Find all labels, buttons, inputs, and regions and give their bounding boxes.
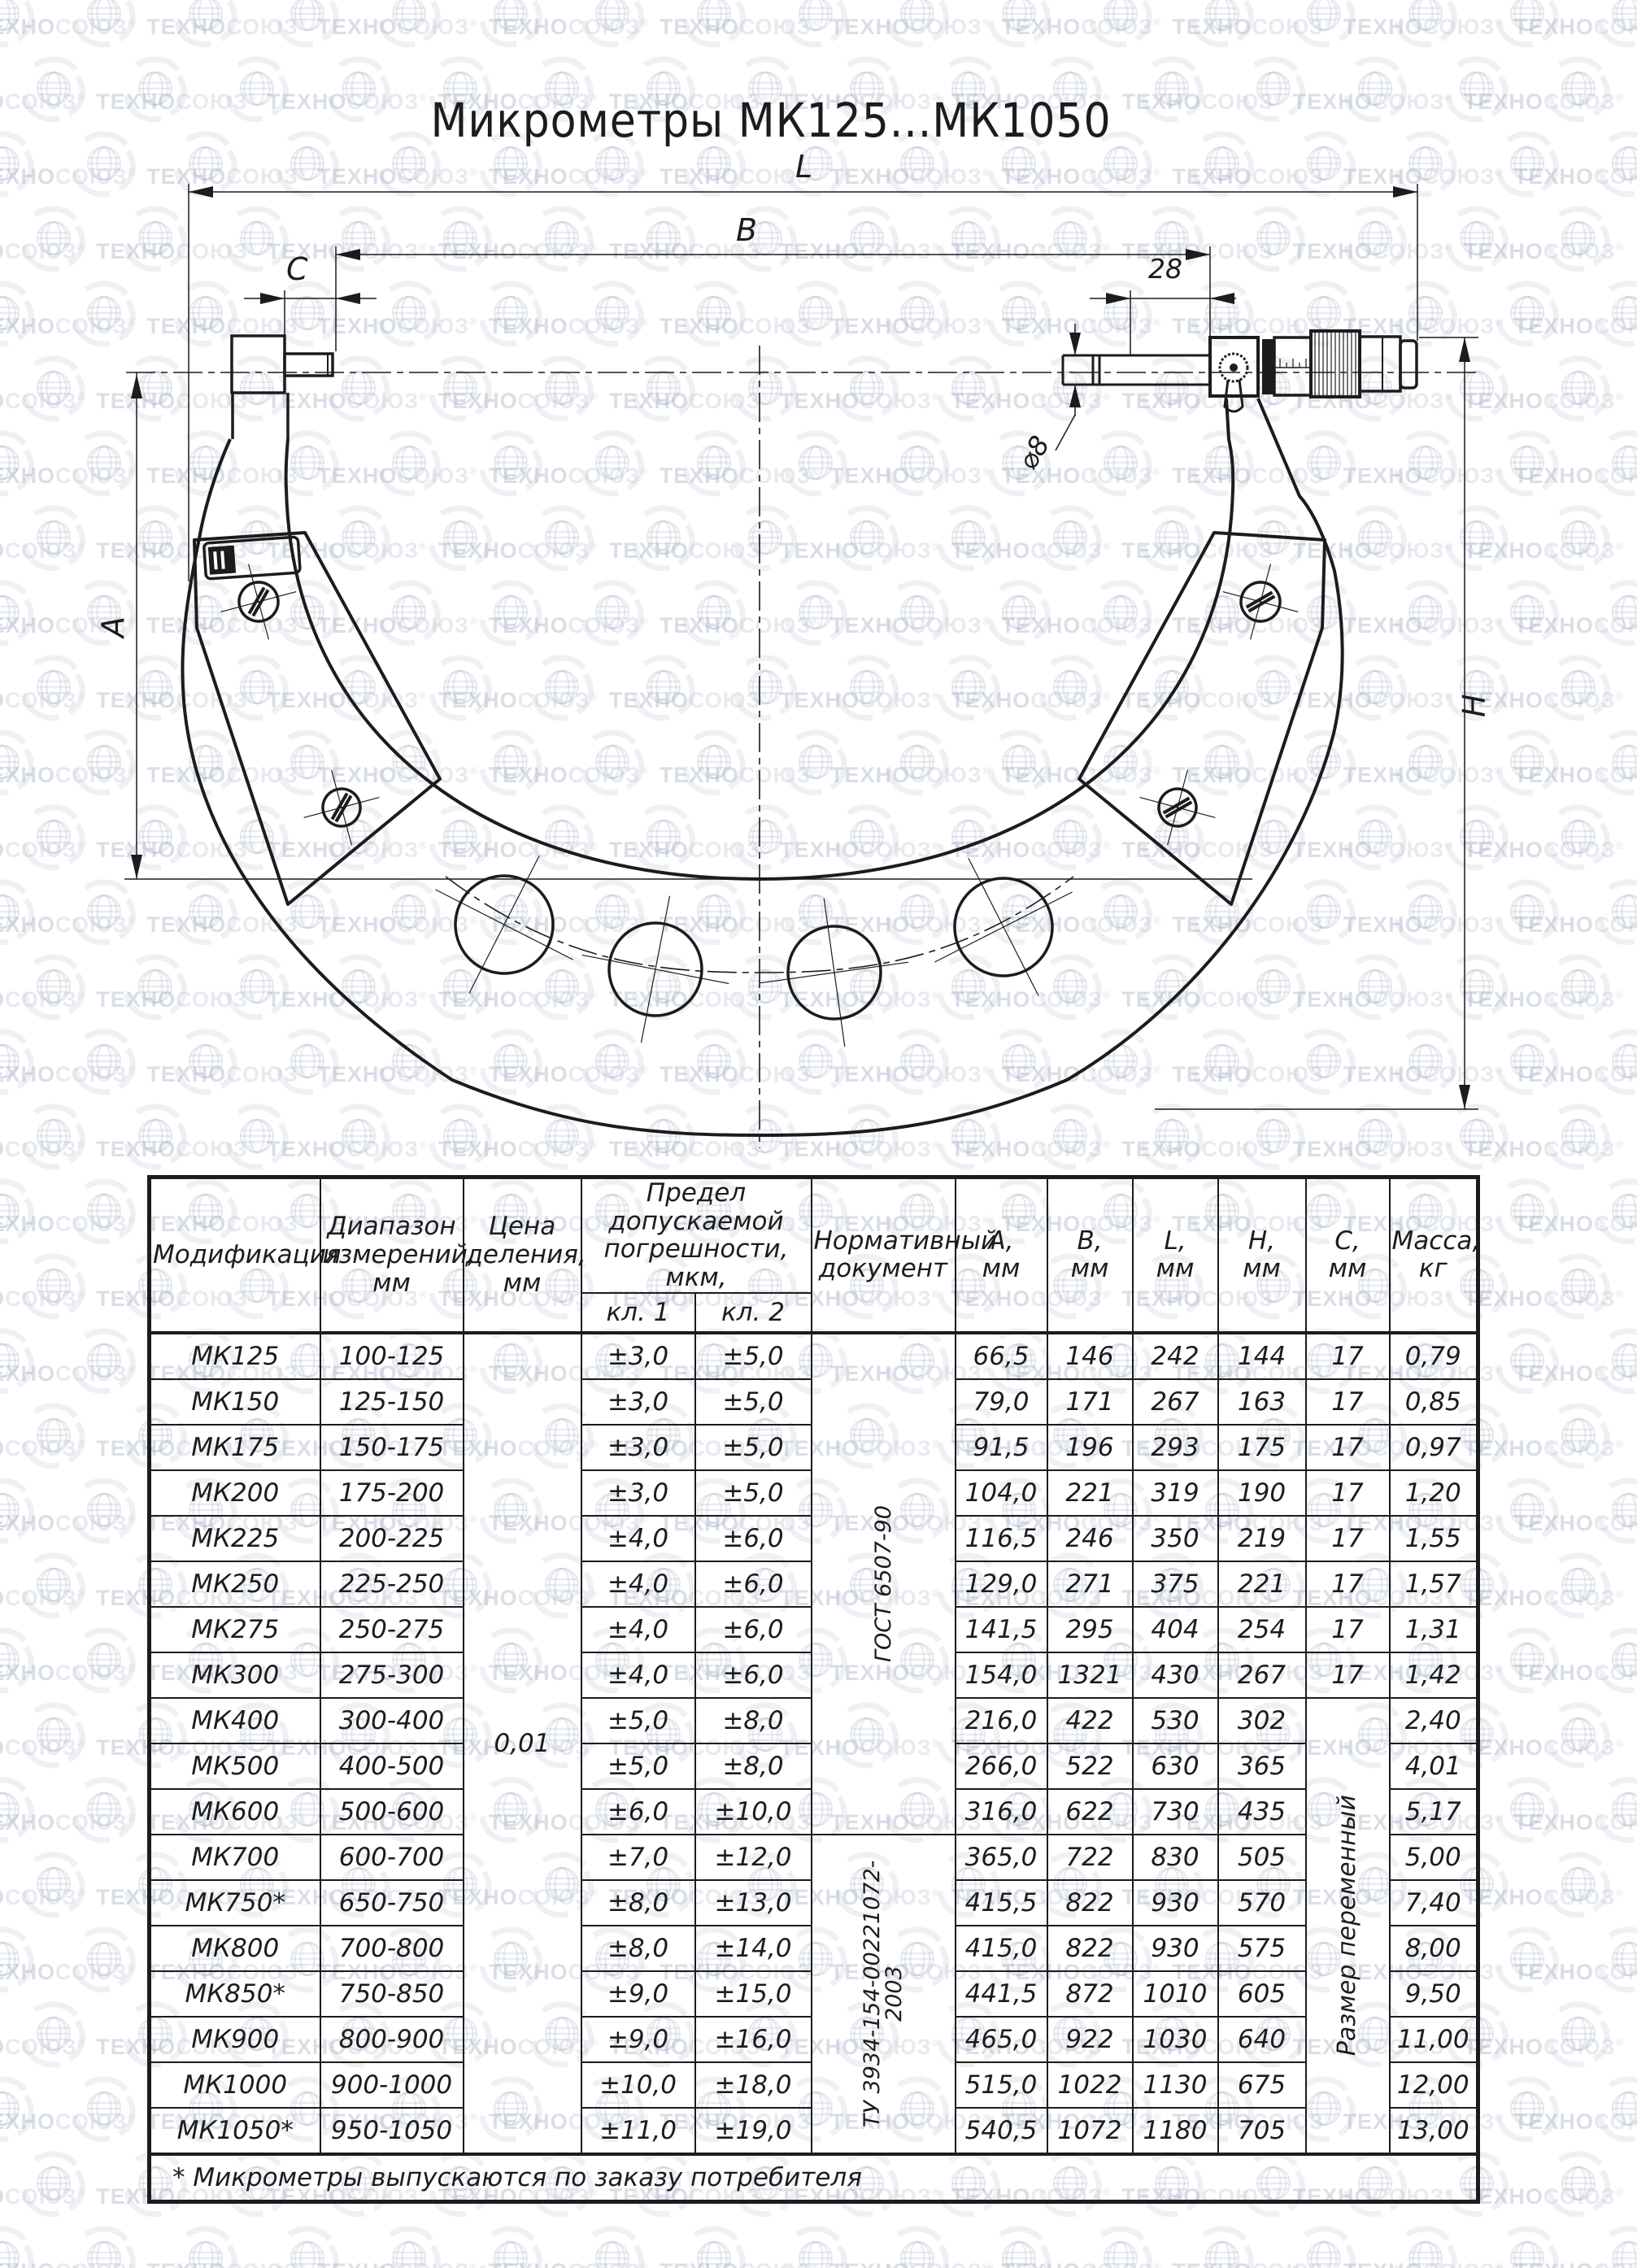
globe-icon <box>1594 1176 1637 1246</box>
cell-b: 271 <box>1047 1561 1133 1607</box>
globe-icon <box>19 1251 89 1321</box>
cell-mass: 2,40 <box>1390 1698 1478 1743</box>
cell-mass: 5,17 <box>1390 1789 1478 1835</box>
cell-b: 171 <box>1047 1379 1133 1425</box>
cell-mass: 1,57 <box>1390 1561 1478 1607</box>
cell-a: 91,5 <box>956 1425 1047 1470</box>
page: ТЕХНОСОЮЗ®ТЕХНОСОЮЗ®ТЕХНОСОЮЗ®ТЕХНОСОЮЗ®… <box>0 0 1637 2268</box>
globe-icon <box>1492 1475 1562 1545</box>
cell-range: 800-900 <box>320 2017 464 2062</box>
thimble-group <box>1262 331 1417 397</box>
cell-mass: 4,01 <box>1390 1743 1478 1789</box>
globe-icon <box>1594 1625 1637 1695</box>
watermark-text: ТЕХНОСОЮЗ® <box>1464 1735 1624 1761</box>
globe-icon <box>1594 2074 1637 2144</box>
col-header-division: Цена деления, мм <box>464 1178 581 1333</box>
cell-h: 175 <box>1218 1425 1306 1470</box>
globe-icon <box>69 1625 139 1695</box>
cell-modification: МК250 <box>150 1561 320 1607</box>
watermark-text: ТЕХНОСОЮЗ® <box>660 2259 820 2268</box>
globe-icon <box>1594 1774 1637 1844</box>
watermark-text-row: ТЕХНОСОЮЗ®ТЕХНОСОЮЗ®ТЕХНОСОЮЗ®ТЕХНОСОЮЗ®… <box>0 2259 1637 2268</box>
cell-modification: МК275 <box>150 1607 320 1652</box>
globe-icon <box>69 2074 139 2144</box>
globe-icon <box>374 2223 444 2268</box>
globe-icon <box>1594 1475 1637 1545</box>
globe-icon <box>171 2223 241 2268</box>
watermark-text: ТЕХНОСОЮЗ® <box>1001 2259 1161 2268</box>
cell-c: 17 <box>1306 1425 1390 1470</box>
cell-range: 125-150 <box>320 1379 464 1425</box>
cell-l: 1010 <box>1133 1971 1218 2017</box>
globe-icon <box>1187 2223 1257 2268</box>
cell-b: 196 <box>1047 1425 1133 1470</box>
cell-l: 830 <box>1133 1835 1218 1880</box>
cell-division: 0,01 <box>464 1333 581 2154</box>
cell-range: 600-700 <box>320 1835 464 1880</box>
globe-icon <box>1543 1400 1613 1470</box>
cell-class2: ±13,0 <box>695 1880 812 1926</box>
watermark-text: ТЕХНОСОЮЗ® <box>0 2184 85 2209</box>
cell-range: 200-225 <box>320 1516 464 1561</box>
cell-range: 300-400 <box>320 1698 464 1743</box>
cell-l: 293 <box>1133 1425 1218 1470</box>
cell-class1: ±10,0 <box>581 2062 695 2108</box>
cell-mass: 1,31 <box>1390 1607 1478 1652</box>
cell-doc-tu: ТУ 3934-154-00221072-2003 <box>812 1835 956 2154</box>
col-header-l: L, мм <box>1133 1178 1218 1333</box>
dim-label-L: L <box>795 149 812 185</box>
cell-h: 219 <box>1218 1516 1306 1561</box>
dimension-H: H <box>1155 337 1492 1109</box>
watermark-text: ТЕХНОСОЮЗ® <box>146 2259 307 2268</box>
watermark-text: ТЕХНОСОЮЗ® <box>1514 2109 1637 2135</box>
cell-b: 146 <box>1047 1333 1133 1379</box>
cell-a: 129,0 <box>956 1561 1047 1607</box>
cell-modification: МК700 <box>150 1835 320 1880</box>
cell-class1: ±3,0 <box>581 1425 695 1470</box>
cell-range: 225-250 <box>320 1561 464 1607</box>
cell-mass: 5,00 <box>1390 1835 1478 1880</box>
cell-c: 17 <box>1306 1607 1390 1652</box>
globe-icon <box>69 1924 139 1994</box>
cell-h: 675 <box>1218 2062 1306 2108</box>
dim-label-B: B <box>736 212 757 248</box>
spec-table: Модификация Диапазон измерений, мм Цена … <box>147 1175 1480 2204</box>
globe-icon <box>0 1475 37 1545</box>
cell-class1: ±5,0 <box>581 1743 695 1789</box>
cell-modification: МК500 <box>150 1743 320 1789</box>
cell-modification: МК600 <box>150 1789 320 1835</box>
cell-modification: МК750* <box>150 1880 320 1926</box>
cell-l: 1030 <box>1133 2017 1218 2062</box>
cell-h: 221 <box>1218 1561 1306 1607</box>
cell-class1: ±11,0 <box>581 2108 695 2154</box>
watermark-text: ТЕХНОСОЮЗ® <box>0 1735 85 1761</box>
globe-icon <box>19 1400 89 1470</box>
cell-class2: ±6,0 <box>695 1516 812 1561</box>
cell-class1: ±9,0 <box>581 2017 695 2062</box>
cell-class2: ±6,0 <box>695 1607 812 1652</box>
globe-icon <box>1594 1326 1637 1395</box>
globe-icon <box>19 1550 89 1620</box>
cell-l: 404 <box>1133 1607 1218 1652</box>
globe-icon <box>1543 1251 1613 1321</box>
cell-a: 216,0 <box>956 1698 1047 1743</box>
globe-icon <box>1492 2223 1562 2268</box>
cell-range: 700-800 <box>320 1926 464 1971</box>
watermark-text: ТЕХНОСОЮЗ® <box>1514 1212 1637 1237</box>
watermark-text: ТЕХНОСОЮЗ® <box>0 1436 85 1461</box>
cell-range: 650-750 <box>320 1880 464 1926</box>
cell-l: 930 <box>1133 1926 1218 1971</box>
cell-range: 275-300 <box>320 1652 464 1698</box>
watermark-text: ТЕХНОСОЮЗ® <box>1514 1960 1637 1985</box>
globe-icon <box>0 1625 37 1695</box>
cell-l: 242 <box>1133 1333 1218 1379</box>
watermark-text: ТЕХНОСОЮЗ® <box>1343 2259 1504 2268</box>
globe-icon <box>0 1176 37 1246</box>
watermark-text: ТЕХНОСОЮЗ® <box>1464 1436 1624 1461</box>
cell-doc-gost: ГОСТ 6507-90 <box>812 1333 956 1835</box>
globe-icon <box>19 1999 89 2069</box>
cell-h: 505 <box>1218 1835 1306 1880</box>
brand-plate <box>203 537 300 579</box>
globe-icon <box>1289 2223 1359 2268</box>
watermark-text: ТЕХНОСОЮЗ® <box>1464 1885 1624 1910</box>
cell-mass: 0,79 <box>1390 1333 1478 1379</box>
watermark-text: ТЕХНОСОЮЗ® <box>1464 2184 1624 2209</box>
watermark-text: ТЕХНОСОЮЗ® <box>0 1810 136 1835</box>
cell-class2: ±10,0 <box>695 1789 812 1835</box>
col-header-class2: кл. 2 <box>695 1293 812 1333</box>
globe-icon <box>69 2223 139 2268</box>
cell-a: 415,0 <box>956 1926 1047 1971</box>
dimension-A: A <box>95 372 1252 879</box>
cell-a: 316,0 <box>956 1789 1047 1835</box>
cell-class2: ±5,0 <box>695 1470 812 1516</box>
globe-icon <box>1492 1924 1562 1994</box>
cell-class1: ±4,0 <box>581 1607 695 1652</box>
watermark-text: ТЕХНОСОЮЗ® <box>830 2259 990 2268</box>
watermark-text: ТЕХНОСОЮЗ® <box>0 1361 136 1386</box>
globe-icon <box>1594 2223 1637 2268</box>
watermark-text: ТЕХНОСОЮЗ® <box>1464 1586 1624 1611</box>
cell-h: 605 <box>1218 1971 1306 2017</box>
cell-modification: МК300 <box>150 1652 320 1698</box>
cell-b: 1022 <box>1047 2062 1133 2108</box>
cell-a: 116,5 <box>956 1516 1047 1561</box>
cell-h: 575 <box>1218 1926 1306 1971</box>
cell-b: 295 <box>1047 1607 1133 1652</box>
watermark-text: ТЕХНОСОЮЗ® <box>0 2259 136 2268</box>
globe-icon <box>69 1176 139 1246</box>
watermark-text: ТЕХНОСОЮЗ® <box>1514 1361 1637 1386</box>
cell-l: 375 <box>1133 1561 1218 1607</box>
cell-b: 1072 <box>1047 2108 1133 2154</box>
cell-class2: ±5,0 <box>695 1425 812 1470</box>
col-header-h: Н, мм <box>1218 1178 1306 1333</box>
cell-mass: 0,85 <box>1390 1379 1478 1425</box>
cell-b: 246 <box>1047 1516 1133 1561</box>
cell-b: 522 <box>1047 1743 1133 1789</box>
cell-class1: ±9,0 <box>581 1971 695 2017</box>
cell-a: 441,5 <box>956 1971 1047 2017</box>
cell-b: 872 <box>1047 1971 1133 2017</box>
spindle-group <box>1063 355 1210 385</box>
cell-c: 17 <box>1306 1561 1390 1607</box>
globe-icon <box>0 1924 37 1994</box>
spec-table-footer: * Микрометры выпускаются по заказу потре… <box>150 2154 1478 2202</box>
cell-mass: 1,20 <box>1390 1470 1478 1516</box>
globe-icon <box>1391 2223 1461 2268</box>
anvil-group <box>232 336 333 439</box>
watermark-text: ТЕХНОСОЮЗ® <box>0 1212 136 1237</box>
cell-class2: ±5,0 <box>695 1379 812 1425</box>
centerlines <box>126 346 1476 1148</box>
cell-modification: МК175 <box>150 1425 320 1470</box>
col-header-b: В, мм <box>1047 1178 1133 1333</box>
dim-label-H: H <box>1456 694 1492 717</box>
cell-a: 415,5 <box>956 1880 1047 1926</box>
globe-icon <box>882 2223 952 2268</box>
col-header-range: Диапазон измерений, мм <box>320 1178 464 1333</box>
watermark-text: ТЕХНОСОЮЗ® <box>1514 2259 1637 2268</box>
cell-class1: ±3,0 <box>581 1333 695 1379</box>
globe-icon <box>0 2074 37 2144</box>
globe-icon <box>1543 1550 1613 1620</box>
cell-b: 822 <box>1047 1926 1133 1971</box>
micrometer-drawing: Микрометры МК125...МК1050 L B <box>0 0 1637 1175</box>
cell-c: 17 <box>1306 1333 1390 1379</box>
globe-icon <box>1492 1326 1562 1395</box>
spec-table-header: Модификация Диапазон измерений, мм Цена … <box>150 1178 1478 1333</box>
cell-mass: 1,55 <box>1390 1516 1478 1561</box>
globe-icon <box>69 1326 139 1395</box>
cell-modification: МК400 <box>150 1698 320 1743</box>
cell-modification: МК1050* <box>150 2108 320 2154</box>
cell-l: 430 <box>1133 1652 1218 1698</box>
col-header-c: С, мм <box>1306 1178 1390 1333</box>
boss-group <box>1210 337 1258 411</box>
cell-modification: МК200 <box>150 1470 320 1516</box>
globe-icon <box>1492 1774 1562 1844</box>
globe-icon <box>69 1475 139 1545</box>
col-header-error-limit: Предел допускаемой погрешности, мкм, <box>581 1178 812 1293</box>
watermark-text: ТЕХНОСОЮЗ® <box>0 1511 136 1536</box>
watermark-text: ТЕХНОСОЮЗ® <box>0 1586 85 1611</box>
cell-modification: МК150 <box>150 1379 320 1425</box>
cell-range: 175-200 <box>320 1470 464 1516</box>
frame-holes <box>400 821 1108 1057</box>
globe-icon <box>19 1700 89 1770</box>
globe-icon <box>0 2223 37 2268</box>
cell-h: 190 <box>1218 1470 1306 1516</box>
page-title: Микрометры МК125...МК1050 <box>430 94 1111 148</box>
watermark-text: ТЕХНОСОЮЗ® <box>1464 1286 1624 1312</box>
watermark-text: ТЕХНОСОЮЗ® <box>0 2109 136 2135</box>
globe-icon <box>1543 1999 1613 2069</box>
cell-h: 365 <box>1218 1743 1306 1789</box>
cell-a: 515,0 <box>956 2062 1047 2108</box>
globe-icon <box>1492 2074 1562 2144</box>
cell-class2: ±15,0 <box>695 1971 812 2017</box>
globe-icon <box>1543 1700 1613 1770</box>
cell-a: 540,5 <box>956 2108 1047 2154</box>
globe-icon <box>1543 1849 1613 1919</box>
globe-icon <box>679 2223 749 2268</box>
globe-icon <box>69 1774 139 1844</box>
cell-l: 1130 <box>1133 2062 1218 2108</box>
dimension-B: B <box>336 212 1210 351</box>
globe-icon <box>1492 1176 1562 1246</box>
cell-c: 17 <box>1306 1379 1390 1425</box>
cell-mass: 0,97 <box>1390 1425 1478 1470</box>
cell-c-variable: Размер переменный <box>1306 1698 1390 2154</box>
cell-l: 350 <box>1133 1516 1218 1561</box>
cell-modification: МК850* <box>150 1971 320 2017</box>
cell-b: 722 <box>1047 1835 1133 1880</box>
cell-class1: ±3,0 <box>581 1470 695 1516</box>
cell-b: 422 <box>1047 1698 1133 1743</box>
cell-mass: 1,42 <box>1390 1652 1478 1698</box>
cell-class1: ±3,0 <box>581 1379 695 1425</box>
watermark-text: ТЕХНОСОЮЗ® <box>1172 2259 1332 2268</box>
cell-a: 266,0 <box>956 1743 1047 1789</box>
cell-modification: МК800 <box>150 1926 320 1971</box>
cell-class2: ±8,0 <box>695 1698 812 1743</box>
cell-mass: 7,40 <box>1390 1880 1478 1926</box>
cell-h: 640 <box>1218 2017 1306 2062</box>
watermark-text: ТЕХНОСОЮЗ® <box>0 2035 85 2060</box>
cell-h: 570 <box>1218 1880 1306 1926</box>
globe-icon <box>1594 1924 1637 1994</box>
cell-class1: ±4,0 <box>581 1652 695 1698</box>
dim-label-C: C <box>286 251 308 287</box>
cell-range: 950-1050 <box>320 2108 464 2154</box>
globe-icon <box>0 1774 37 1844</box>
watermark-text: ТЕХНОСОЮЗ® <box>1464 2035 1624 2060</box>
globe-icon <box>0 1326 37 1395</box>
watermark-text: ТЕХНОСОЮЗ® <box>1514 1810 1637 1835</box>
cell-mass: 13,00 <box>1390 2108 1478 2154</box>
cell-class1: ±8,0 <box>581 1926 695 1971</box>
cell-range: 150-175 <box>320 1425 464 1470</box>
cell-c: 17 <box>1306 1652 1390 1698</box>
cell-a: 141,5 <box>956 1607 1047 1652</box>
watermark-text: ТЕХНОСОЮЗ® <box>1514 1661 1637 1686</box>
cell-modification: МК225 <box>150 1516 320 1561</box>
cell-class2: ±12,0 <box>695 1835 812 1880</box>
cell-class2: ±5,0 <box>695 1333 812 1379</box>
cell-h: 705 <box>1218 2108 1306 2154</box>
cell-class1: ±5,0 <box>581 1698 695 1743</box>
cell-a: 365,0 <box>956 1835 1047 1880</box>
cell-c: 17 <box>1306 1516 1390 1561</box>
cell-range: 250-275 <box>320 1607 464 1652</box>
cell-modification: МК125 <box>150 1333 320 1379</box>
globe-icon <box>272 2223 342 2268</box>
cell-class2: ±18,0 <box>695 2062 812 2108</box>
cell-class2: ±6,0 <box>695 1652 812 1698</box>
globe-icon <box>781 2223 851 2268</box>
watermark-text: ТЕХНОСОЮЗ® <box>0 1661 136 1686</box>
col-header-class1: кл. 1 <box>581 1293 695 1333</box>
dimension-28: 28 <box>1090 253 1236 355</box>
cell-c: 17 <box>1306 1470 1390 1516</box>
globe-icon <box>476 2223 546 2268</box>
col-header-modification: Модификация <box>150 1178 320 1333</box>
col-header-mass: Масса, кг <box>1390 1178 1478 1333</box>
cell-l: 730 <box>1133 1789 1218 1835</box>
cell-l: 930 <box>1133 1880 1218 1926</box>
table-footnote: * Микрометры выпускаются по заказу потре… <box>150 2154 1478 2202</box>
cell-class2: ±6,0 <box>695 1561 812 1607</box>
cell-h: 267 <box>1218 1652 1306 1698</box>
cell-l: 267 <box>1133 1379 1218 1425</box>
watermark-text: ТЕХНОСОЮЗ® <box>0 1885 85 1910</box>
cell-range: 400-500 <box>320 1743 464 1789</box>
cell-a: 104,0 <box>956 1470 1047 1516</box>
globe-icon <box>19 1849 89 1919</box>
frame-outline <box>182 398 1342 1135</box>
cell-l: 319 <box>1133 1470 1218 1516</box>
globe-icon <box>1543 2148 1613 2218</box>
dim-label-28: 28 <box>1148 253 1182 285</box>
globe-icon <box>1086 2223 1156 2268</box>
globe-icon <box>1492 1625 1562 1695</box>
cell-b: 922 <box>1047 2017 1133 2062</box>
cell-mass: 9,50 <box>1390 1971 1478 2017</box>
cell-a: 66,5 <box>956 1333 1047 1379</box>
cell-class1: ±8,0 <box>581 1880 695 1926</box>
cell-a: 465,0 <box>956 2017 1047 2062</box>
globe-icon <box>19 2148 89 2218</box>
cell-h: 302 <box>1218 1698 1306 1743</box>
globe-icon <box>577 2223 647 2268</box>
dim-label-A: A <box>95 616 131 640</box>
table-row: МК125100-1250,01±3,0±5,0ГОСТ 6507-9066,5… <box>150 1333 1478 1379</box>
cell-class2: ±8,0 <box>695 1743 812 1789</box>
cell-h: 435 <box>1218 1789 1306 1835</box>
cell-range: 100-125 <box>320 1333 464 1379</box>
cell-class2: ±14,0 <box>695 1926 812 1971</box>
cell-l: 1180 <box>1133 2108 1218 2154</box>
cell-b: 622 <box>1047 1789 1133 1835</box>
cell-class1: ±7,0 <box>581 1835 695 1880</box>
cell-mass: 11,00 <box>1390 2017 1478 2062</box>
dim-label-diameter8: ⌀8 <box>1012 430 1056 475</box>
cell-mass: 8,00 <box>1390 1926 1478 1971</box>
watermark-text: ТЕХНОСОЮЗ® <box>0 1960 136 1985</box>
dimension-diameter8: ⌀8 <box>1012 324 1081 475</box>
cell-a: 154,0 <box>956 1652 1047 1698</box>
cell-b: 221 <box>1047 1470 1133 1516</box>
cell-mass: 12,00 <box>1390 2062 1478 2108</box>
cell-modification: МК900 <box>150 2017 320 2062</box>
cell-modification: МК1000 <box>150 2062 320 2108</box>
col-header-document: Нормативный документ <box>812 1178 956 1333</box>
watermark-text: ТЕХНОСОЮЗ® <box>0 1286 85 1312</box>
watermark-text: ТЕХНОСОЮЗ® <box>489 2259 649 2268</box>
cell-b: 822 <box>1047 1880 1133 1926</box>
cell-class2: ±19,0 <box>695 2108 812 2154</box>
cell-l: 530 <box>1133 1698 1218 1743</box>
cell-h: 254 <box>1218 1607 1306 1652</box>
cell-range: 500-600 <box>320 1789 464 1835</box>
globe-icon <box>984 2223 1054 2268</box>
cell-a: 79,0 <box>956 1379 1047 1425</box>
